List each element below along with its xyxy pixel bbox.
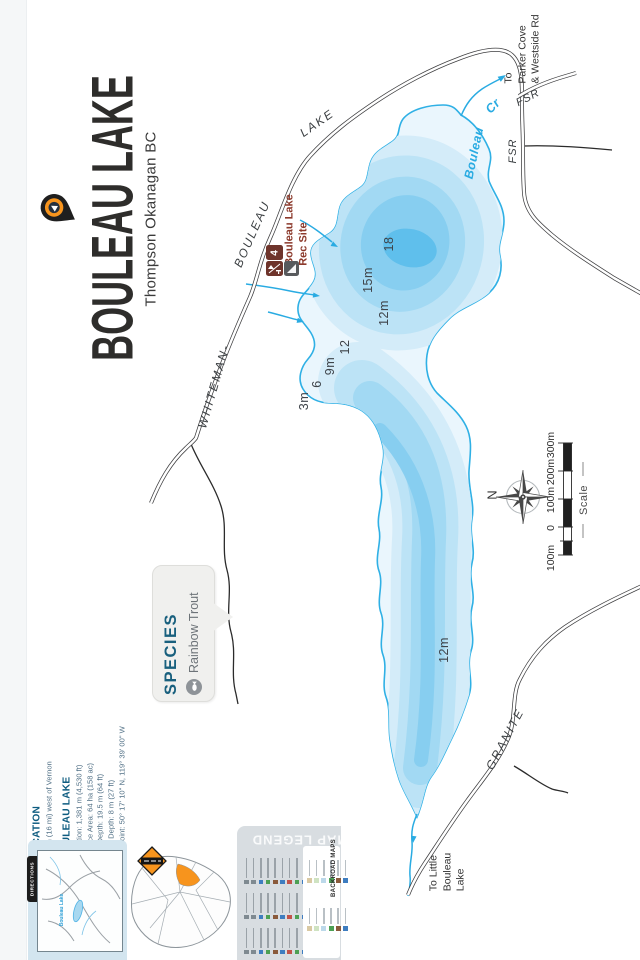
boat-launch-icon (284, 261, 299, 276)
legend-item (266, 893, 271, 919)
legend-item (266, 858, 271, 884)
location-text: 26 km (16 mi) west of Vernon (45, 708, 56, 860)
legend-item (287, 893, 292, 919)
brand-pin-icon (36, 189, 82, 231)
road-spur-east (524, 146, 612, 150)
legend-item (321, 860, 326, 883)
legend-item (294, 893, 299, 919)
legend-item (294, 928, 299, 954)
brand-name: BACKROAD MAPS (331, 839, 337, 897)
compass-rose (496, 470, 550, 524)
page-title: BOULEAU LAKE (80, 75, 147, 361)
legend-item (258, 893, 263, 919)
legend-item (251, 858, 256, 884)
legend-item (251, 893, 256, 919)
info-block: LOCATION 26 km (16 mi) west of Vernon BO… (30, 708, 127, 860)
depth-9m: 9m (323, 357, 337, 375)
campsite-icon (266, 261, 283, 276)
scale-tick-200m: 200m (545, 459, 557, 485)
legend-item (314, 860, 319, 883)
legend-item (336, 908, 341, 931)
stat-max-depth: Max Depth: 19.5 m (64 ft) (96, 708, 107, 860)
legend-item (287, 928, 292, 954)
species-header: SPECIES (162, 567, 181, 695)
legend-item (321, 908, 326, 931)
legend-item (314, 908, 319, 931)
rec-site-number-tile: 4 (266, 245, 283, 260)
depth-contours (277, 113, 526, 790)
stat-elevation: Elevation: 1,381 m (4,530 ft) (75, 708, 86, 860)
fish-icon (186, 679, 202, 695)
destination-little-bouleau: To LittleBouleauLake (428, 853, 469, 892)
legend-item (258, 858, 263, 884)
legend-item (280, 928, 285, 954)
legend-item (307, 860, 312, 883)
creek-inflow-2 (246, 284, 314, 295)
depth-15m: 15m (361, 267, 375, 293)
legend-item (244, 893, 249, 919)
legend-item (280, 858, 285, 884)
rec-site-label: Bouleau LakeRec Site (283, 194, 311, 266)
bc-province-inset (131, 847, 230, 947)
scale-tick-0: 0 (545, 525, 557, 531)
directions-tab-label: DIRECTIONS (30, 862, 35, 896)
directions-inset-map (37, 850, 123, 952)
legend-item (266, 928, 271, 954)
legend-item (258, 928, 263, 954)
depth-12m-north: 12m (377, 300, 391, 326)
legend-item (287, 858, 292, 884)
legend-item (273, 893, 278, 919)
legend-item (273, 858, 278, 884)
legend-item (343, 860, 348, 883)
species-content: SPECIES Rainbow Trout (162, 567, 202, 695)
legend-item (280, 893, 285, 919)
road-spur-south (514, 766, 568, 793)
legend-item (329, 908, 334, 931)
species-item: Rainbow Trout (187, 592, 201, 673)
map-sheet: BOULEAU LAKE Thompson Okanagan BC WHITEM… (0, 0, 640, 960)
stat-surface-area: Surface Area: 64 ha (158 ac) (85, 708, 96, 860)
page-subtitle: Thompson Okanagan BC (143, 131, 160, 306)
legend-item (273, 928, 278, 954)
scale-tick-100m: 100m (545, 487, 557, 513)
lake-stats-header: BOULEAU LAKE (60, 708, 74, 860)
legend-band-5 (307, 908, 348, 931)
scale-title: Scale (578, 485, 590, 515)
legend-item (244, 928, 249, 954)
depth-18: 18 (382, 237, 396, 252)
lake-bouleau (277, 105, 526, 817)
creek-inflow-3 (268, 312, 298, 320)
depth-3m: 3m (297, 392, 311, 410)
species-callout-pointer (212, 602, 233, 632)
legend-band-4 (307, 860, 348, 883)
depth-12m-south: 12m (437, 637, 451, 663)
legend-item (244, 858, 249, 884)
compass-north-label: N (485, 490, 500, 499)
scale-tick-ext-100m: 100m (545, 545, 557, 571)
legend-item (251, 928, 256, 954)
inset-lake-label: Bouleau Lake (59, 894, 65, 927)
scale-tick-300m: 300m (545, 432, 557, 458)
directions-tab: DIRECTIONS (27, 856, 37, 902)
road-label-fsr-main: FSR (507, 139, 519, 164)
depth-6: 6 (310, 380, 324, 387)
destination-parker-cove: ToParker Cove& Westside Rd (503, 14, 544, 83)
legend-item (307, 908, 312, 931)
legend-item (294, 858, 299, 884)
stat-mean-depth: Mean Depth: 8 m (27 ft) (106, 708, 117, 860)
stat-waypoint: Waypoint: 50° 17' 10" N, 119° 39' 00" W (117, 708, 128, 860)
location-header: LOCATION (30, 708, 44, 860)
legend-item (343, 908, 348, 931)
depth-12: 12 (338, 340, 352, 355)
